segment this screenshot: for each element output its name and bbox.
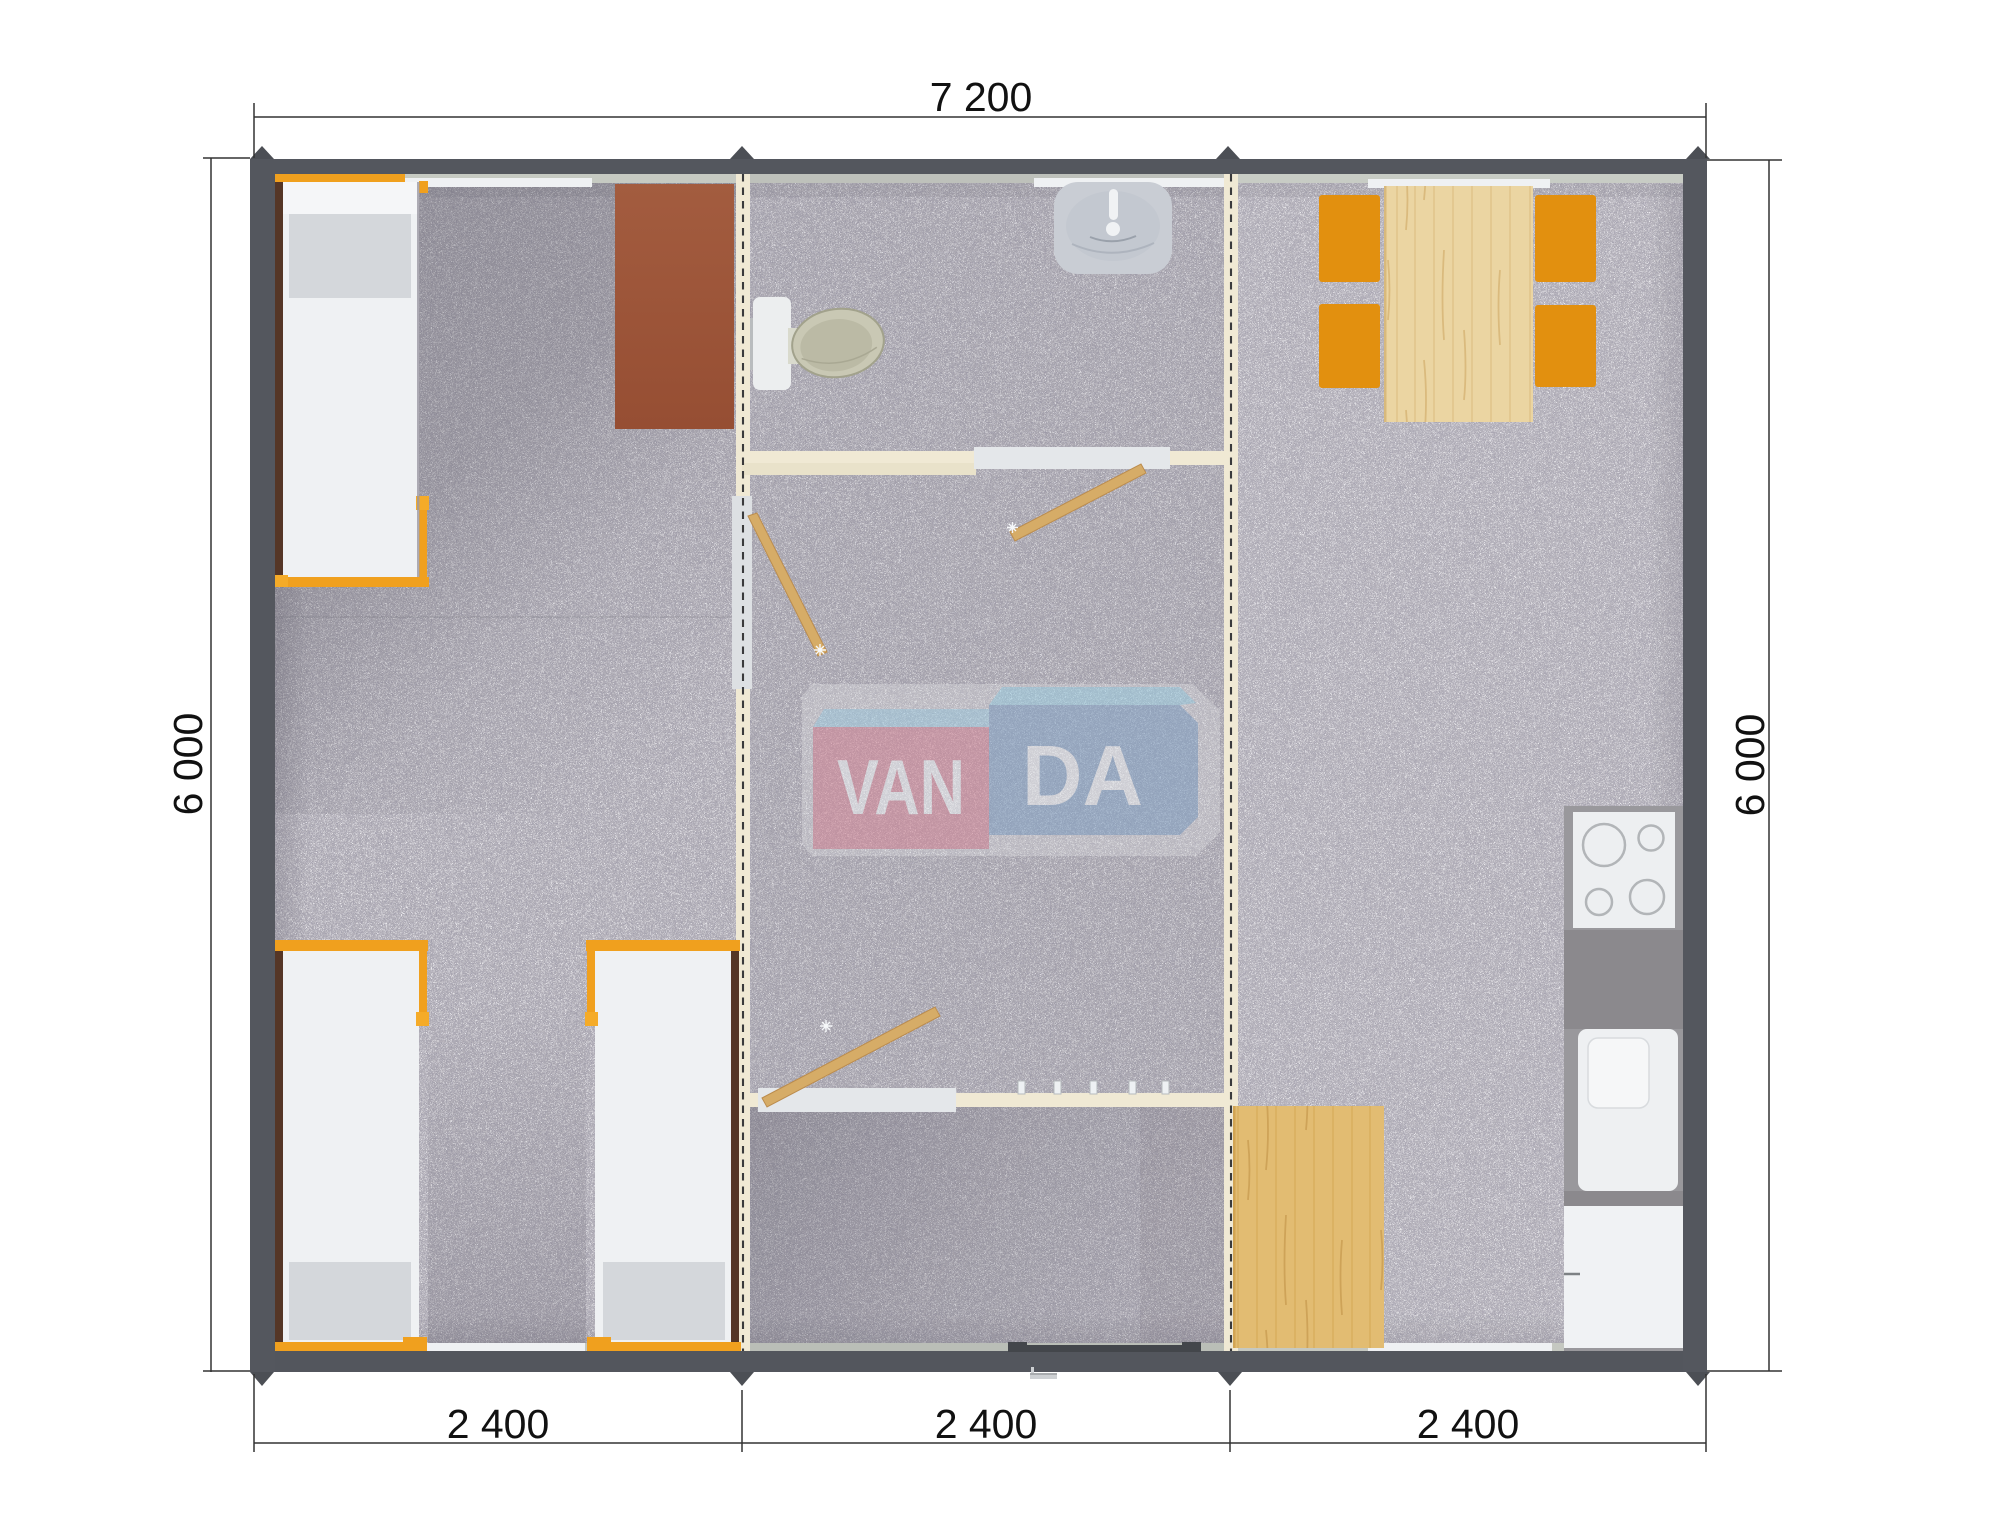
svg-text:7 200: 7 200 xyxy=(930,74,1033,120)
svg-text:2 400: 2 400 xyxy=(447,1401,550,1447)
svg-text:6 000: 6 000 xyxy=(165,713,211,816)
svg-text:VAN: VAN xyxy=(837,743,965,831)
svg-text:6 000: 6 000 xyxy=(1727,714,1773,817)
svg-text:DA: DA xyxy=(1022,729,1143,824)
svg-text:2 400: 2 400 xyxy=(1417,1401,1520,1447)
svg-text:2 400: 2 400 xyxy=(935,1401,1038,1447)
